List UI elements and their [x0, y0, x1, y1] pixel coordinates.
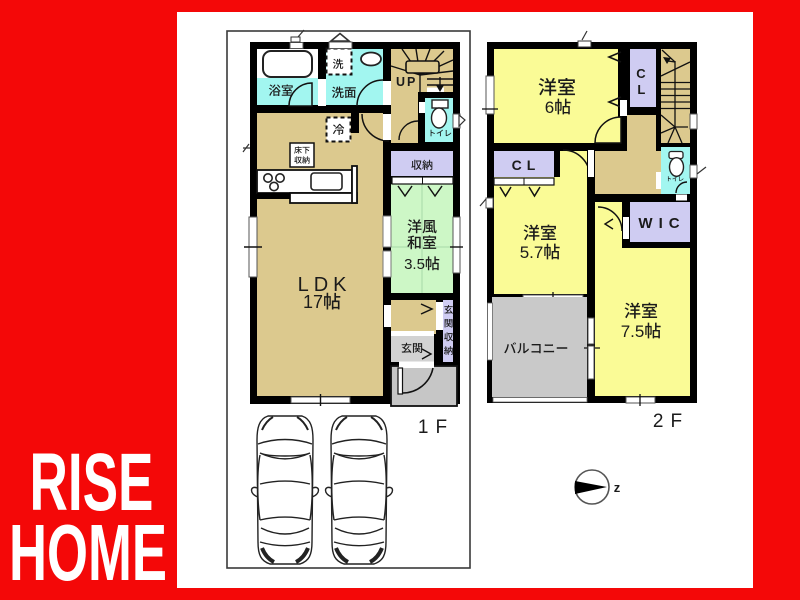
svg-text:L: L: [637, 82, 645, 97]
svg-text:z: z: [614, 480, 621, 495]
svg-text:HOME: HOME: [9, 508, 167, 597]
svg-text:6: 6: [545, 98, 554, 117]
svg-text:5: 5: [635, 322, 644, 341]
svg-text:1F: 1F: [418, 417, 454, 438]
svg-text:3: 3: [404, 256, 412, 273]
svg-text:7: 7: [313, 292, 323, 312]
svg-text:C: C: [636, 66, 646, 81]
svg-text:1: 1: [303, 292, 313, 312]
svg-text:W: W: [638, 215, 653, 232]
svg-text:UP: UP: [396, 75, 417, 89]
svg-text:I: I: [659, 215, 663, 232]
svg-text:2F: 2F: [653, 411, 689, 432]
svg-text:7: 7: [621, 322, 630, 341]
svg-text:7: 7: [534, 243, 543, 262]
svg-text:5: 5: [520, 243, 529, 262]
svg-text:L: L: [527, 157, 536, 173]
svg-text:C: C: [512, 157, 522, 173]
svg-text:K: K: [333, 274, 347, 296]
svg-text:5: 5: [417, 256, 425, 273]
svg-text:C: C: [669, 215, 680, 232]
